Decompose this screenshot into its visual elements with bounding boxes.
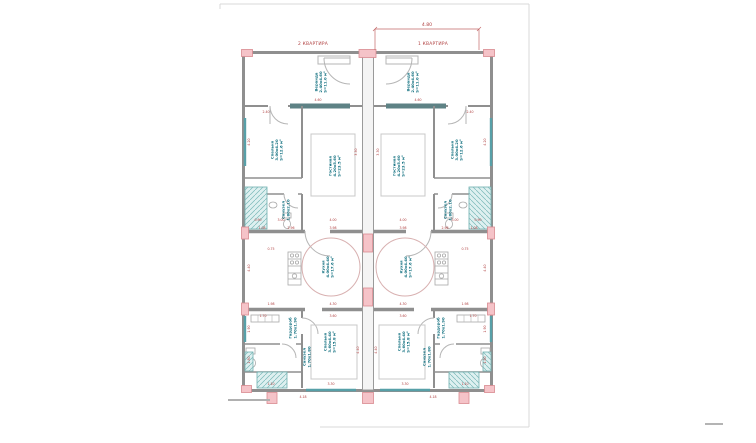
room-label: 1.80х2.10 xyxy=(447,199,452,221)
dimension-text: 4.30 xyxy=(399,302,406,306)
dimension-text: 3.30 xyxy=(354,148,358,155)
dimension-text: 4.40 xyxy=(483,264,487,271)
room-label: S=23.5 м² xyxy=(401,155,406,177)
dimension-text: 3.98 xyxy=(399,226,406,230)
room-label: S=17.6 м² xyxy=(408,256,413,278)
floor-plan-svg: 4.80 2 КВАРТИРА 1 КВАРТИРА 4.604.602.402… xyxy=(0,0,756,443)
room-label: S=11.0 м² xyxy=(415,71,420,93)
dimension-text: 1.80 xyxy=(483,356,487,363)
dimension-text: 1.98 xyxy=(461,302,468,306)
dimension-text: 4.20 xyxy=(247,138,251,145)
dimension-text: 2.96 xyxy=(441,226,448,230)
unit-left-label: 2 КВАРТИРА xyxy=(298,41,328,47)
dimension-text: 1.10 xyxy=(267,382,274,386)
dimension-text: 4.00 xyxy=(329,218,336,222)
dimension-text: 4.40 xyxy=(374,346,378,353)
dimension-text: 3.30 xyxy=(401,382,408,386)
dimension-text: 0.75 xyxy=(461,247,468,251)
dimension-text: 4.60 xyxy=(414,98,421,102)
dimension-text: 1.70 xyxy=(259,314,266,318)
room-label: 1.70х1.80 xyxy=(306,346,311,368)
dimension-text: 4.60 xyxy=(314,98,321,102)
floor-plan xyxy=(228,27,495,404)
room-label: S=12.6 м² xyxy=(459,139,464,161)
dimension-text: 4.00 xyxy=(399,218,406,222)
dimension-text: 1.70 xyxy=(469,314,476,318)
room-label: 1.70х1.90 xyxy=(292,317,297,339)
dimension-text: 3.60 xyxy=(329,314,336,318)
dimension-text: 0.90 xyxy=(254,218,261,222)
dimension-text: 1.98 xyxy=(267,302,274,306)
dimension-text: 3.60 xyxy=(399,314,406,318)
dimension-text: 2.96 xyxy=(287,226,294,230)
dimension-text: 4.18 xyxy=(299,395,306,399)
top-dimension-text: 4.80 xyxy=(422,22,432,28)
dimension-text: 0.90 xyxy=(474,218,481,222)
veranda-window-band xyxy=(290,104,350,109)
dimension-text: 1.08 xyxy=(258,226,265,230)
room-label: S=17.6 м² xyxy=(330,256,335,278)
dimension-text: 3.30 xyxy=(376,148,380,155)
room-label: S=12.6 м² xyxy=(279,139,284,161)
room-label: S=15.8 м² xyxy=(332,331,337,353)
kitchen-counter xyxy=(288,252,301,285)
unit-right-label: 1 КВАРТИРА xyxy=(418,41,448,47)
dimension-text: 1.08 xyxy=(470,226,477,230)
dimension-text: 4.30 xyxy=(329,302,336,306)
dimension-text: 4.20 xyxy=(483,138,487,145)
dimension-text: 2.40 xyxy=(262,110,269,114)
dimension-text: 2.40 xyxy=(466,110,473,114)
room-label: 1.70х1.80 xyxy=(426,346,431,368)
room-label: S=15.8 м² xyxy=(406,331,411,353)
dimension-text: 1.90 xyxy=(247,325,251,332)
dimension-text: 0.75 xyxy=(267,247,274,251)
room-label: S=23.5 м² xyxy=(337,155,342,177)
dimension-text: 4.40 xyxy=(356,346,360,353)
dimension-text: 3.00 xyxy=(451,218,458,222)
dimension-text: 4.40 xyxy=(247,264,251,271)
dimension-text: 3.30 xyxy=(327,382,334,386)
room-label: 1.80х2.10 xyxy=(285,199,290,221)
room-label: 1.70х1.90 xyxy=(440,317,445,339)
dimension-text: 1.10 xyxy=(461,382,468,386)
room-label: S=11.0 м² xyxy=(323,71,328,93)
dimension-text: 1.80 xyxy=(247,356,251,363)
drawing-canvas: 4.80 2 КВАРТИРА 1 КВАРТИРА 4.604.602.402… xyxy=(0,0,756,443)
dimension-text: 3.98 xyxy=(329,226,336,230)
dimension-text: 1.90 xyxy=(483,325,487,332)
dimension-text: 4.18 xyxy=(429,395,436,399)
